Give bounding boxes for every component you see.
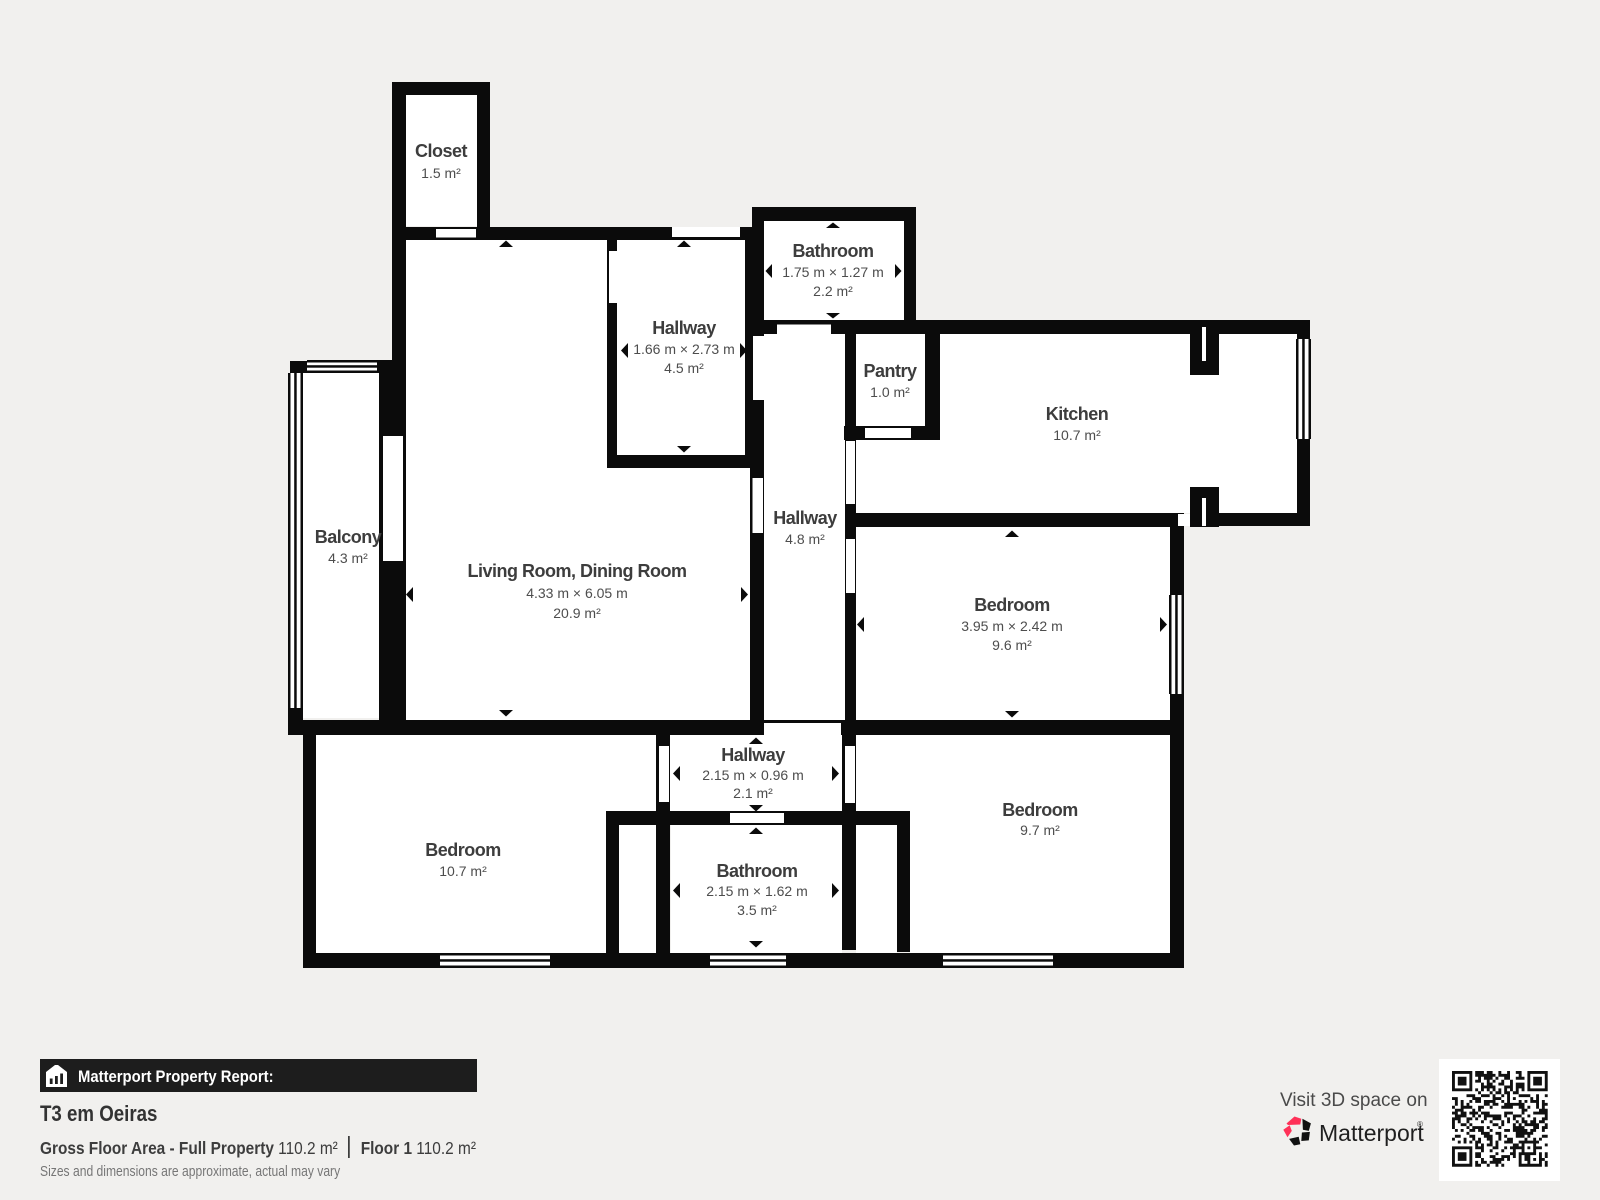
svg-text:Bathroom: Bathroom	[717, 861, 798, 881]
svg-text:9.6 m²: 9.6 m²	[992, 637, 1032, 653]
svg-text:Hallway: Hallway	[652, 318, 716, 338]
svg-text:2.1 m²: 2.1 m²	[733, 785, 773, 801]
svg-text:Living Room, Dining Room: Living Room, Dining Room	[468, 561, 687, 581]
svg-text:10.7 m²: 10.7 m²	[1053, 427, 1101, 443]
svg-text:1.66 m × 2.73 m: 1.66 m × 2.73 m	[633, 341, 735, 357]
svg-text:Bedroom: Bedroom	[974, 595, 1050, 615]
svg-text:Balcony: Balcony	[315, 527, 382, 547]
svg-text:20.9 m²: 20.9 m²	[553, 605, 601, 621]
svg-text:9.7 m²: 9.7 m²	[1020, 822, 1060, 838]
svg-text:4.5 m²: 4.5 m²	[664, 360, 704, 376]
svg-text:Bedroom: Bedroom	[425, 840, 501, 860]
svg-text:2.15 m × 1.62 m: 2.15 m × 1.62 m	[706, 883, 808, 899]
svg-text:Hallway: Hallway	[773, 508, 837, 528]
svg-text:10.7 m²: 10.7 m²	[439, 863, 487, 879]
svg-text:2.15 m × 0.96 m: 2.15 m × 0.96 m	[702, 767, 804, 783]
svg-text:Kitchen: Kitchen	[1046, 404, 1109, 424]
svg-text:1.75 m × 1.27 m: 1.75 m × 1.27 m	[782, 264, 884, 280]
svg-text:4.8 m²: 4.8 m²	[785, 531, 825, 547]
svg-text:Pantry: Pantry	[863, 361, 917, 381]
svg-text:3.95 m × 2.42 m: 3.95 m × 2.42 m	[961, 618, 1063, 634]
svg-text:Closet: Closet	[415, 141, 468, 161]
svg-text:1.0 m²: 1.0 m²	[870, 384, 910, 400]
svg-text:Bedroom: Bedroom	[1002, 800, 1078, 820]
svg-text:2.2 m²: 2.2 m²	[813, 283, 853, 299]
svg-text:Bathroom: Bathroom	[793, 241, 874, 261]
svg-text:®: ®	[1417, 1120, 1423, 1129]
svg-text:3.5 m²: 3.5 m²	[737, 902, 777, 918]
svg-text:4.33 m × 6.05 m: 4.33 m × 6.05 m	[526, 585, 628, 601]
svg-text:4.3 m²: 4.3 m²	[328, 550, 368, 566]
svg-text:1.5 m²: 1.5 m²	[421, 165, 461, 181]
svg-text:Matterport: Matterport	[1319, 1120, 1424, 1146]
svg-text:Hallway: Hallway	[721, 745, 785, 765]
